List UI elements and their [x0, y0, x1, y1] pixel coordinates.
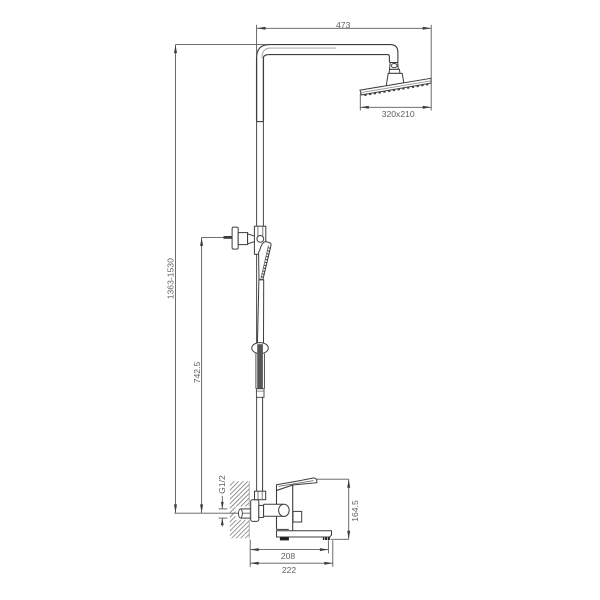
svg-text:222: 222 — [282, 565, 297, 575]
svg-text:208: 208 — [281, 551, 296, 561]
svg-text:G1/2: G1/2 — [217, 475, 227, 494]
svg-text:473: 473 — [336, 20, 351, 30]
svg-text:1363-1530: 1363-1530 — [165, 258, 175, 299]
svg-text:742.5: 742.5 — [192, 362, 202, 384]
svg-text:320x210: 320x210 — [382, 109, 415, 119]
svg-text:164.5: 164.5 — [350, 500, 360, 522]
